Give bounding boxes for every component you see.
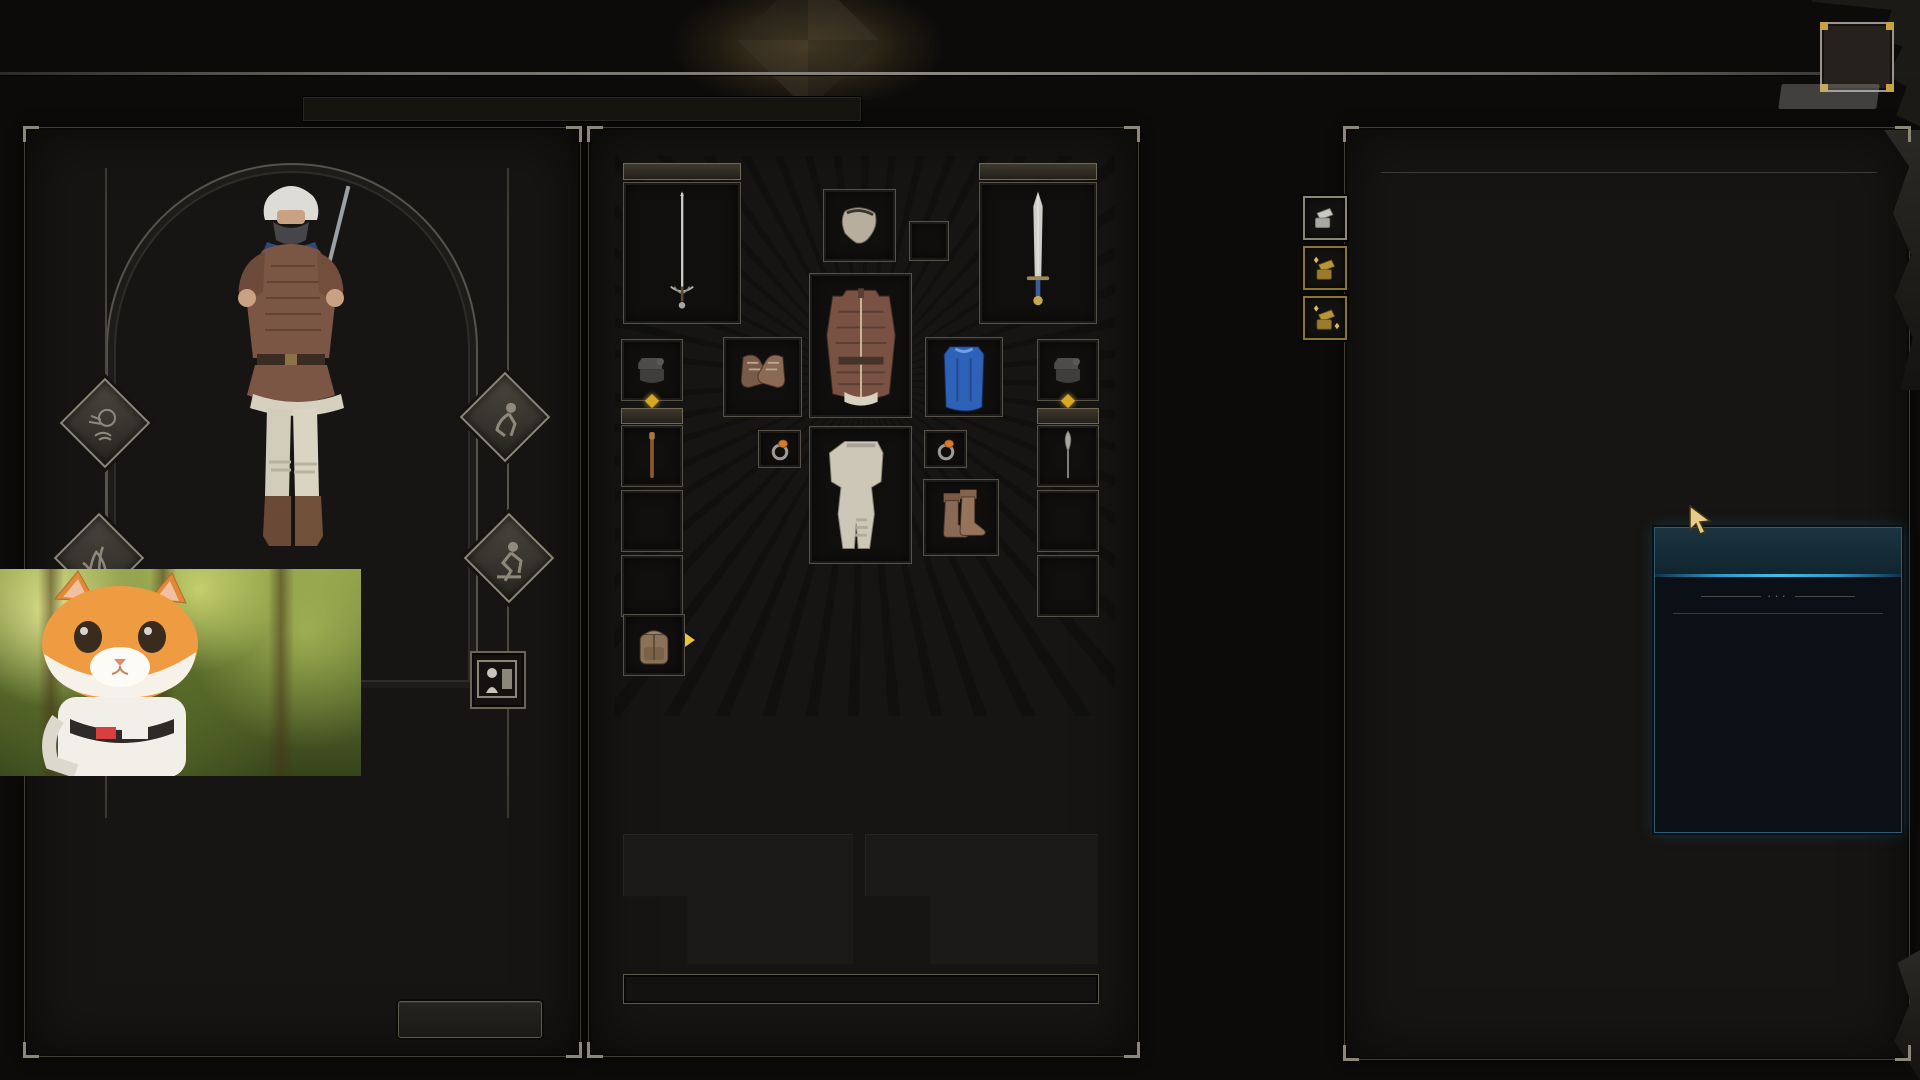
corner-ornament	[1343, 1045, 1359, 1061]
tool-slot-empty[interactable]	[1037, 490, 1099, 552]
corner-ornament	[1343, 126, 1359, 142]
character-sheet-button[interactable]	[470, 651, 526, 709]
weapon-slot-2[interactable]	[979, 182, 1097, 324]
douyu-watermark	[1770, 0, 1920, 150]
corner-ornament	[566, 126, 582, 142]
wooden-stick-icon	[629, 428, 675, 484]
scarf-icon	[832, 198, 888, 254]
tool-slot-empty[interactable]	[621, 555, 683, 617]
corner-ornament	[1895, 1045, 1911, 1061]
boots-slot[interactable]	[923, 479, 999, 556]
pouch-ghost-icon	[1045, 347, 1091, 393]
pouch-ghost-icon	[629, 347, 675, 393]
tool-slot-4[interactable]	[1037, 425, 1099, 487]
chest-open-gold-icon	[1309, 252, 1341, 284]
weapon-slot-1[interactable]	[623, 182, 741, 324]
backpack-slot[interactable]	[623, 614, 685, 676]
corner-ornament	[587, 126, 603, 142]
gold-bar	[623, 974, 1099, 1004]
weapon-set-2-header	[979, 163, 1097, 180]
unload-all-button[interactable]	[1303, 196, 1347, 240]
open-details-button[interactable]	[398, 1001, 542, 1038]
game-screen: ···	[0, 0, 1920, 1080]
tool-slot-3[interactable]	[621, 425, 683, 487]
skull-tools-icon	[81, 402, 129, 450]
room-label	[1778, 84, 1880, 109]
tool-set-4-header	[1037, 408, 1099, 424]
tool-slot-empty[interactable]	[621, 490, 683, 552]
corner-ornament	[566, 1042, 582, 1058]
backpack-grid	[693, 611, 1105, 818]
cape-slot[interactable]	[925, 337, 1003, 417]
corner-ornament	[587, 1042, 603, 1058]
boots-icon	[929, 486, 993, 550]
webcam-overlay	[0, 569, 361, 776]
spearhead-icon	[1045, 428, 1091, 484]
ring-slot-right[interactable]	[924, 430, 967, 468]
logo-corner	[1820, 22, 1828, 30]
rapier-icon	[654, 187, 710, 319]
corner-ornament	[23, 1042, 39, 1058]
figure-board-icon	[472, 653, 522, 705]
pouch-slot-left[interactable]	[621, 339, 683, 401]
chest-slot[interactable]	[809, 273, 912, 418]
logo-corner	[1886, 84, 1894, 92]
accessory-slot-empty[interactable]	[909, 221, 949, 261]
neck-scarf-slot[interactable]	[823, 189, 896, 262]
equipment-panel	[588, 127, 1139, 1057]
orange-ring-icon	[764, 434, 796, 464]
warehouse-title-divider	[1381, 172, 1877, 173]
corner-ornament	[23, 126, 39, 142]
orange-ring-icon	[930, 434, 962, 464]
deposit-same-button[interactable]	[1303, 246, 1347, 290]
sword-icon	[1010, 187, 1066, 319]
nav-active-emblem-glow	[668, 0, 948, 100]
corner-ornament	[1124, 126, 1140, 142]
corner-ornament	[1124, 1042, 1140, 1058]
hint-bar	[302, 96, 862, 122]
logo-corner	[1886, 22, 1894, 30]
backpack-icon	[631, 619, 677, 671]
pouch-slot-right[interactable]	[1037, 339, 1099, 401]
ring-slot-left[interactable]	[758, 430, 801, 468]
chest-open-silver-icon	[1309, 202, 1341, 234]
tooltip-footer-divider	[1673, 613, 1883, 614]
gambeson-icon	[817, 282, 905, 410]
douyu-logo	[1820, 22, 1894, 92]
tooltip-divider	[1655, 574, 1901, 577]
decor-panel-right	[865, 834, 1098, 964]
item-tooltip: ···	[1654, 527, 1902, 833]
decor-panel-left	[623, 834, 853, 964]
skill-rail-right	[507, 168, 509, 818]
tooltip-section-dots: ···	[1655, 587, 1901, 603]
deposit-all-button[interactable]	[1303, 296, 1347, 340]
weapon-set-1-header	[623, 163, 741, 180]
chest-open-gold-sparkles-icon	[1309, 302, 1341, 334]
pants-slot[interactable]	[809, 426, 912, 564]
blue-cape-icon	[931, 339, 997, 415]
tool-set-3-header	[621, 408, 683, 424]
tooltip-title-box	[1655, 528, 1901, 574]
running-figure-icon	[485, 537, 533, 585]
pants-icon	[818, 435, 904, 555]
gloves-icon	[730, 344, 796, 410]
cat-figure	[0, 569, 300, 776]
tool-slot-empty[interactable]	[1037, 555, 1099, 617]
nav-divider	[0, 72, 1920, 75]
gloves-slot[interactable]	[723, 337, 802, 417]
crouching-figure-icon	[481, 396, 529, 444]
